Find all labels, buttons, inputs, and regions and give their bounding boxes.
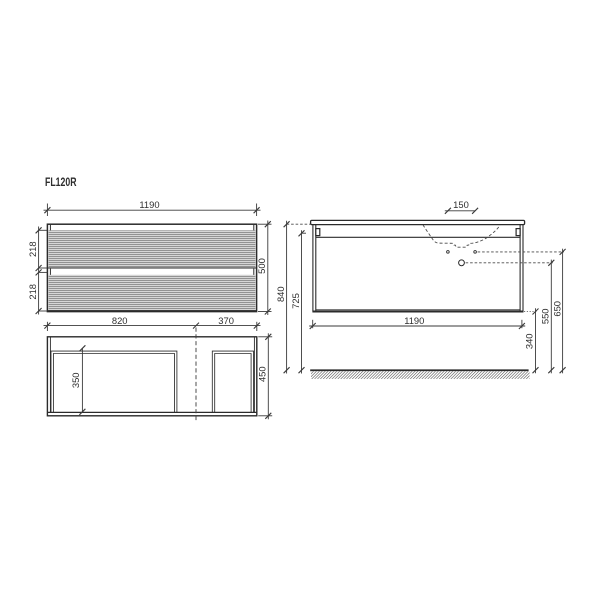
svg-text:820: 820 [112, 315, 128, 326]
svg-text:840: 840 [275, 286, 286, 302]
svg-text:450: 450 [257, 366, 268, 382]
svg-text:500: 500 [256, 258, 267, 274]
svg-text:370: 370 [218, 315, 234, 326]
svg-text:350: 350 [70, 372, 81, 388]
svg-text:1190: 1190 [404, 315, 424, 326]
svg-text:725: 725 [290, 293, 301, 309]
svg-text:FL120R: FL120R [45, 175, 77, 189]
svg-text:550: 550 [540, 308, 551, 324]
svg-text:650: 650 [551, 301, 562, 317]
svg-text:340: 340 [523, 333, 534, 349]
svg-text:150: 150 [453, 199, 469, 210]
svg-text:218: 218 [27, 241, 38, 257]
svg-text:218: 218 [27, 284, 38, 300]
svg-text:1190: 1190 [139, 199, 159, 210]
